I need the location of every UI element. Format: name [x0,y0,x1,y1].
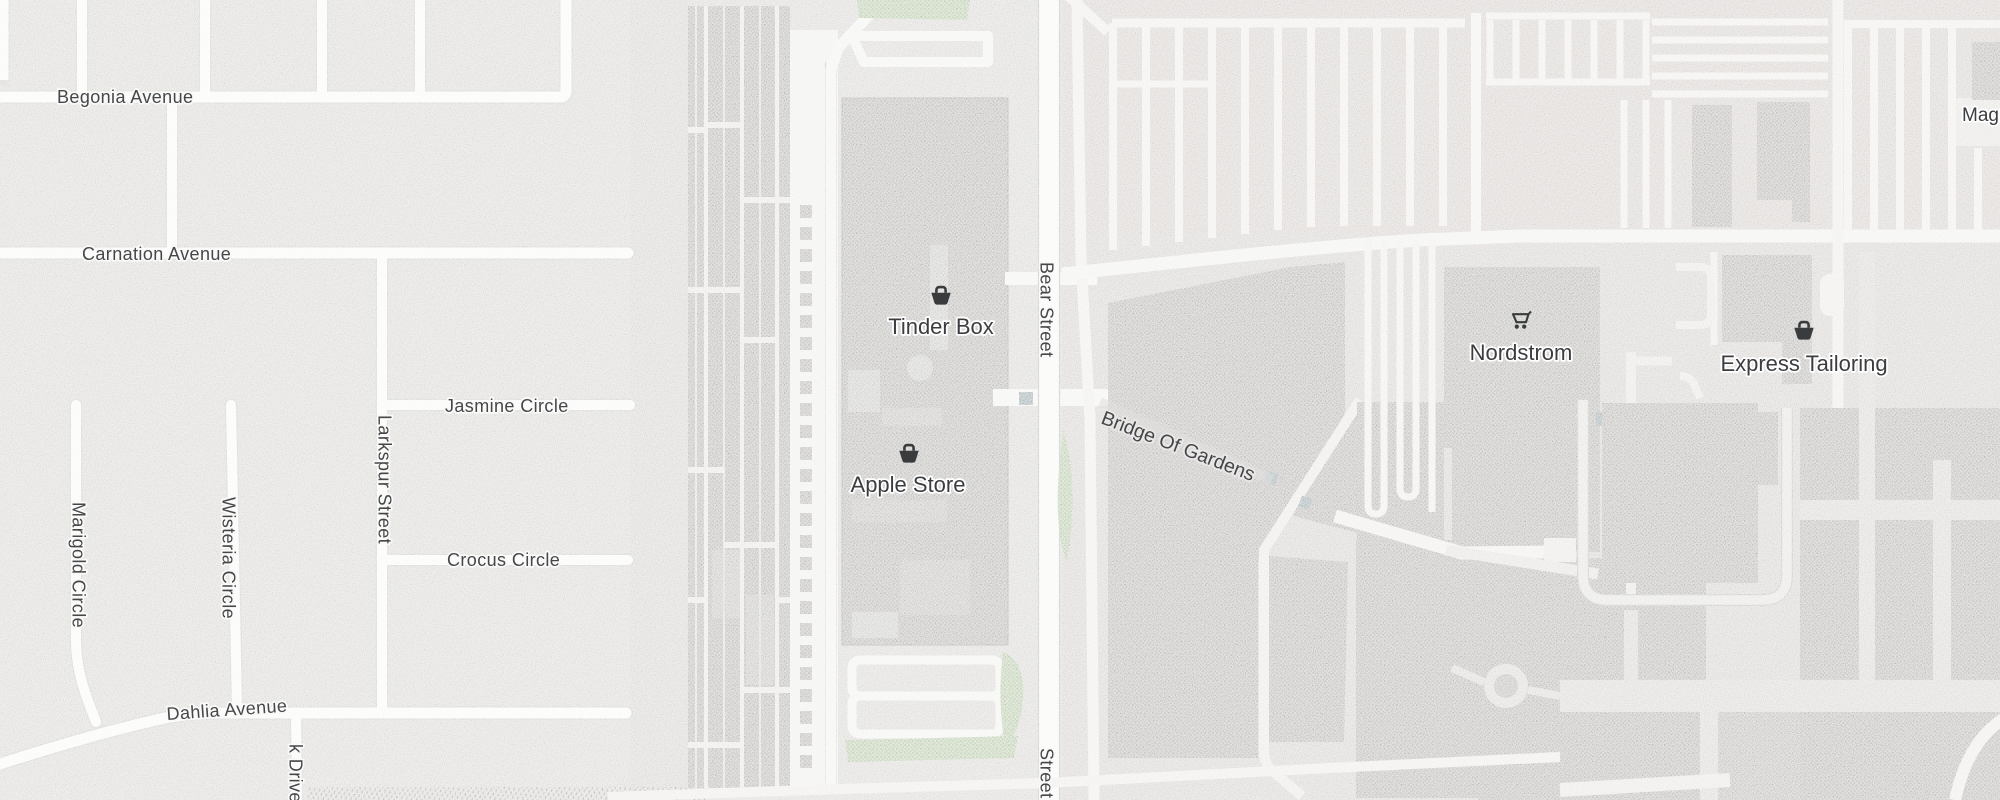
svg-text:Street: Street [1037,748,1057,798]
svg-text:Carnation Avenue: Carnation Avenue [82,244,231,264]
svg-text:Bear Street: Bear Street [1037,262,1057,357]
svg-text:Apple Store: Apple Store [851,472,966,497]
svg-text:Express Tailoring: Express Tailoring [1720,351,1887,376]
svg-text:Begonia Avenue: Begonia Avenue [57,87,193,107]
svg-text:Marigold Circle: Marigold Circle [69,502,89,628]
svg-text:Magno: Magno [1962,105,2000,126]
svg-text:Jasmine Circle: Jasmine Circle [445,396,569,416]
svg-text:k Drive: k Drive [286,744,306,800]
svg-text:Larkspur Street: Larkspur Street [375,415,395,544]
svg-text:Nordstrom: Nordstrom [1470,340,1573,365]
svg-text:Wisteria Circle: Wisteria Circle [219,497,239,619]
svg-text:Crocus Circle: Crocus Circle [447,550,560,570]
svg-text:Tinder Box: Tinder Box [888,314,994,339]
